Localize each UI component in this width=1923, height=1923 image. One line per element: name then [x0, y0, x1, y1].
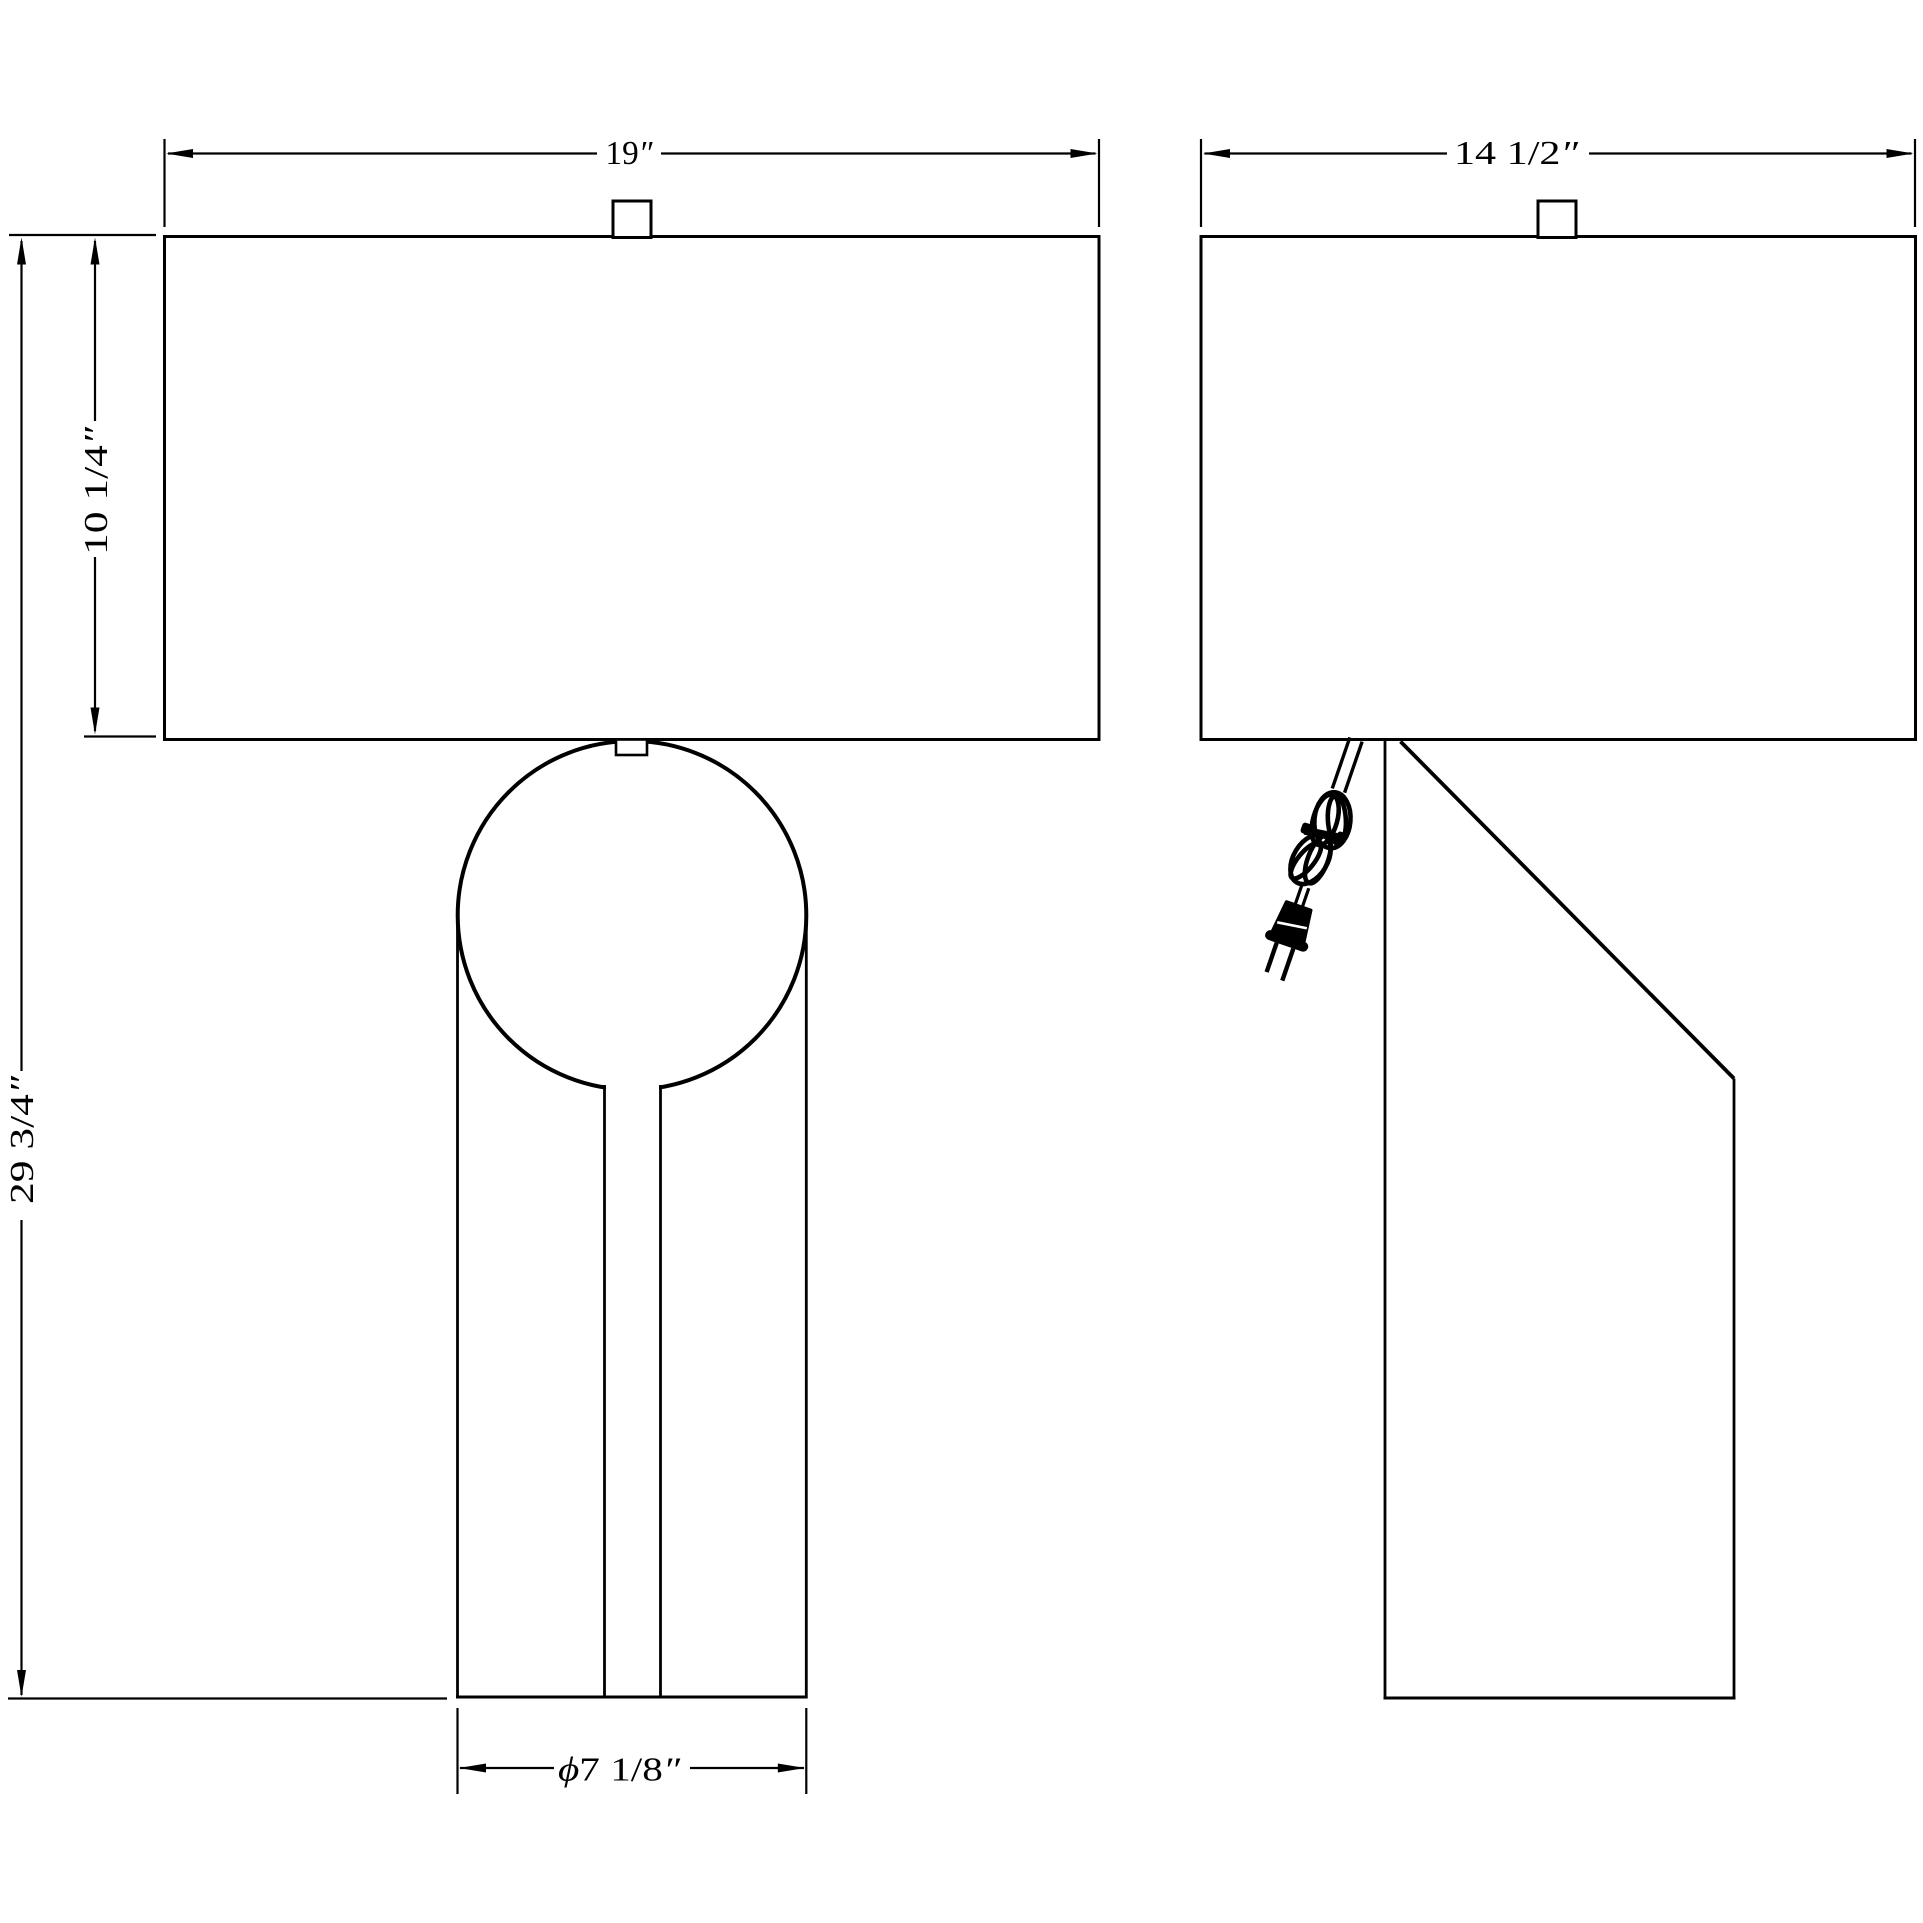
svg-text:14 1/2″: 14 1/2″	[1454, 135, 1579, 172]
svg-text:ϕ7 1/8″: ϕ7 1/8″	[558, 1752, 681, 1789]
svg-text:29 3/4″: 29 3/4″	[4, 1075, 41, 1204]
svg-text:10 1/4″: 10 1/4″	[78, 426, 115, 555]
svg-text:19″: 19″	[606, 135, 654, 172]
